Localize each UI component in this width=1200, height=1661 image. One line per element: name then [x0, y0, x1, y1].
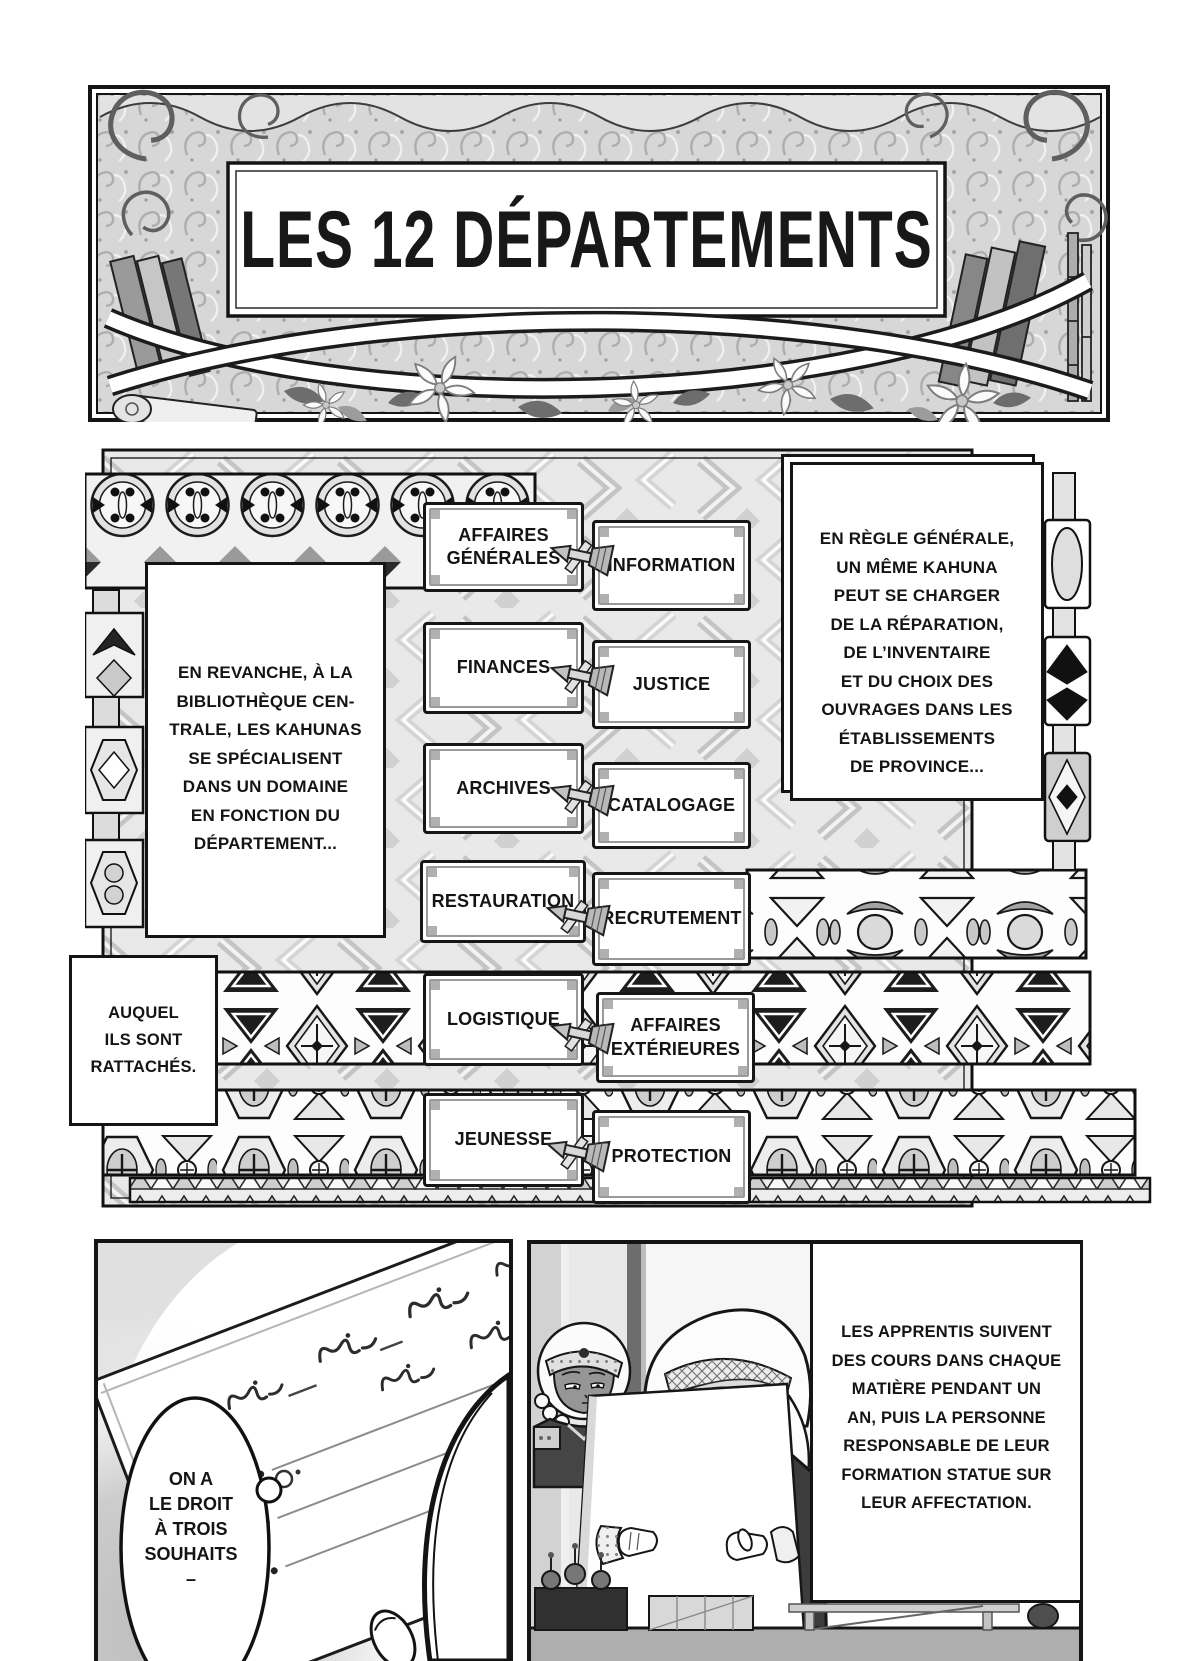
department-box-archives: ARCHIVES: [423, 743, 584, 834]
department-label: INFORMATION: [603, 554, 741, 577]
department-box-logistique: LOGISTIQUE: [423, 973, 584, 1066]
department-label: ARCHIVES: [451, 777, 556, 800]
narration-box-en-revanche: EN REVANCHE, À LA BIBLIOTHÈQUE CEN- TRAL…: [145, 562, 386, 938]
department-box-finances: FINANCES: [423, 622, 584, 714]
narration-text: EN REVANCHE, À LA BIBLIOTHÈQUE CEN- TRAL…: [148, 565, 383, 859]
speech-bubble-text: ON A LE DROIT À TROIS SOUHAITS –: [128, 1467, 254, 1592]
department-label: AFFAIRES EXTÉRIEURES: [604, 1014, 747, 1060]
department-box-justice: JUSTICE: [592, 640, 751, 729]
department-label: LOGISTIQUE: [442, 1008, 565, 1031]
department-box-restauration: RESTAURATION: [420, 860, 586, 943]
narration-text: EN RÈGLE GÉNÉRALE, UN MÊME KAHUNA PEUT S…: [793, 465, 1041, 782]
narration-box-general-rule: EN RÈGLE GÉNÉRALE, UN MÊME KAHUNA PEUT S…: [790, 462, 1044, 801]
department-box-information: INFORMATION: [592, 520, 751, 611]
bottom-left-panel: [94, 1239, 513, 1661]
department-label: CATALOGAGE: [603, 794, 740, 817]
department-label: JEUNESSE: [450, 1128, 558, 1151]
narration-box-auquel: AUQUEL ILS SONT RATTACHÉS.: [69, 955, 218, 1126]
department-label: RESTAURATION: [427, 890, 580, 913]
department-box-catalogage: CATALOGAGE: [592, 762, 751, 849]
department-label: FINANCES: [452, 656, 556, 679]
department-label: JUSTICE: [628, 673, 715, 696]
manga-page: LES 12 DÉPARTEMENTS: [0, 0, 1200, 1661]
narration-text: LES APPRENTIS SUIVENT DES COURS DANS CHA…: [813, 1244, 1080, 1518]
department-label: PROTECTION: [606, 1145, 736, 1168]
department-label: AFFAIRES GÉNÉRALES: [431, 524, 576, 570]
department-box-protection: PROTECTION: [592, 1110, 751, 1204]
department-box-affaires-generales: AFFAIRES GÉNÉRALES: [423, 502, 584, 592]
page-title: LES 12 DÉPARTEMENTS: [240, 193, 933, 287]
department-box-recrutement: RECRUTEMENT: [592, 872, 751, 966]
department-box-affaires-exterieures: AFFAIRES EXTÉRIEURES: [596, 992, 755, 1083]
wish-paper-art: [98, 1243, 509, 1661]
title-banner: LES 12 DÉPARTEMENTS: [228, 163, 945, 316]
narration-text: AUQUEL ILS SONT RATTACHÉS.: [72, 958, 215, 1081]
department-label: RECRUTEMENT: [596, 907, 746, 930]
narration-box-apprentis: LES APPRENTIS SUIVENT DES COURS DANS CHA…: [810, 1244, 1080, 1603]
department-box-jeunesse: JEUNESSE: [423, 1093, 584, 1187]
